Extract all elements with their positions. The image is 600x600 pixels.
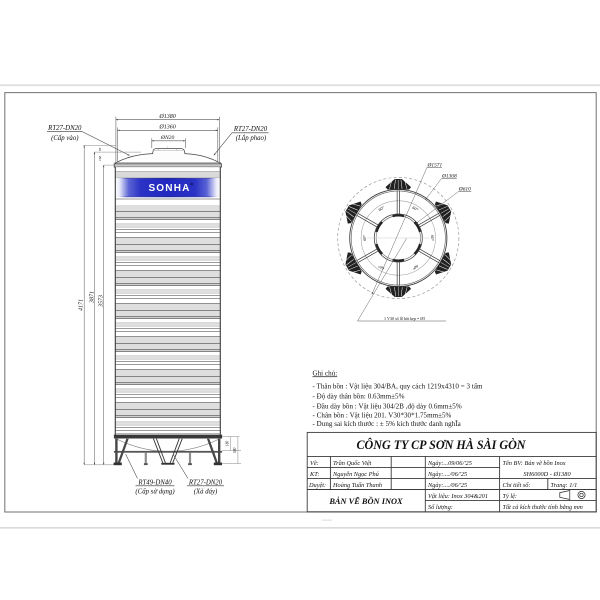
svg-text:Tất cả kích thước tính bằng mm: Tất cả kích thước tính bằng mm	[503, 504, 584, 511]
svg-text:ØN20: ØN20	[160, 135, 175, 141]
svg-text:(Cấp sử dụng): (Cấp sử dụng)	[135, 488, 175, 495]
svg-text:168: 168	[98, 156, 102, 161]
svg-text:1 V30 số lỗ bắt kẹp = Ø5: 1 V30 số lỗ bắt kẹp = Ø5	[384, 316, 425, 321]
svg-text:Ngày:...09/06/'25: Ngày:...09/06/'25	[427, 460, 472, 467]
svg-text:180: 180	[226, 441, 230, 447]
svg-text:85: 85	[98, 147, 102, 151]
svg-text:RT27-DN20: RT27-DN20	[188, 479, 223, 486]
svg-text:RT27-DN20: RT27-DN20	[47, 125, 82, 132]
svg-text:- Đầu dày bồn : Vật liệu 304/2: - Đầu dày bồn : Vật liệu 304/2B ,độ dày …	[313, 403, 462, 411]
svg-text:SH6000D - Ø1380: SH6000D - Ø1380	[523, 471, 571, 478]
svg-text:KT:: KT:	[309, 471, 319, 478]
svg-text:Số lượng:: Số lượng:	[428, 504, 453, 511]
svg-text:(Xả đáy): (Xả đáy)	[194, 488, 218, 495]
svg-text:Ghi chú:: Ghi chú:	[313, 369, 338, 377]
svg-text:60°: 60°	[362, 235, 367, 241]
svg-text:RT49-DN40: RT49-DN40	[137, 479, 172, 486]
svg-text:Duyệt:: Duyệt:	[308, 482, 326, 489]
svg-text:60°: 60°	[430, 235, 435, 241]
svg-text:BẢN VẼ BỒN INOX: BẢN VẼ BỒN INOX	[328, 496, 403, 506]
svg-text:Vật liệu: Inox 304&201: Vật liệu: Inox 304&201	[428, 493, 488, 500]
svg-text:- Độ dày thân bồn: 0.63mm±5%: - Độ dày thân bồn: 0.63mm±5%	[313, 393, 405, 401]
svg-text:Nguyễn Ngọc Phú: Nguyễn Ngọc Phú	[332, 471, 379, 478]
svg-text:SONHA: SONHA	[148, 183, 190, 194]
svg-text:CÔNG TY CP SƠN HÀ SÀI GÒN: CÔNG TY CP SƠN HÀ SÀI GÒN	[356, 438, 526, 452]
svg-text:Ngày:..../06/'25: Ngày:..../06/'25	[427, 482, 467, 489]
svg-text:Ngày:..../06/'25: Ngày:..../06/'25	[427, 471, 467, 478]
svg-text:Tỷ lệ:: Tỷ lệ:	[503, 493, 518, 500]
svg-text:Chi tiết số:: Chi tiết số:	[503, 482, 531, 489]
svg-text:- Dung sai kích thước : ± 5% k: - Dung sai kích thước : ± 5% kích thước …	[313, 420, 462, 428]
svg-text:580: 580	[233, 448, 237, 454]
svg-text:- Thân bồn : Vật liệu 304/BA,: - Thân bồn : Vật liệu 304/BA, quy cách 1…	[313, 382, 483, 390]
svg-text:4171: 4171	[78, 299, 85, 311]
svg-text:- Chân bồn : Vật liệu 201. V3: - Chân bồn : Vật liệu 201. V30*30*1.75mm…	[313, 412, 452, 420]
svg-text:Ø1360: Ø1360	[158, 125, 175, 131]
svg-text:Vẽ:: Vẽ:	[310, 460, 319, 467]
svg-text:Ø1380: Ø1380	[158, 114, 175, 120]
svg-text:(Lắp phao): (Lắp phao)	[236, 135, 267, 142]
svg-text:Tên BV: Bản vẽ bồn Inox: Tên BV: Bản vẽ bồn Inox	[503, 460, 566, 467]
svg-text:3573: 3573	[99, 295, 105, 308]
svg-text:(Cấp vào): (Cấp vào)	[51, 135, 79, 142]
svg-text:3871: 3871	[89, 291, 95, 304]
svg-text:Trần Quốc Việt: Trần Quốc Việt	[333, 460, 372, 467]
svg-text:Trang: 1/1: Trang: 1/1	[551, 482, 578, 489]
svg-text:Hoàng Tuấn Thanh: Hoàng Tuấn Thanh	[332, 482, 382, 489]
svg-text:RT27-DN20: RT27-DN20	[233, 126, 268, 133]
